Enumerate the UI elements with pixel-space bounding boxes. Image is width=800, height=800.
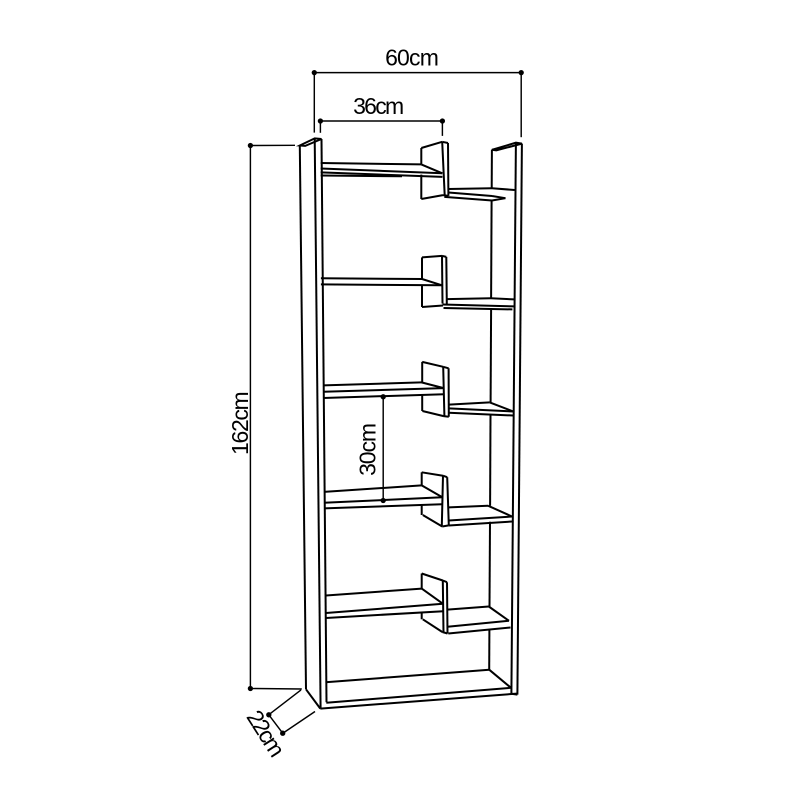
- svg-text:162cm: 162cm: [227, 392, 253, 454]
- svg-text:60cm: 60cm: [385, 45, 438, 71]
- svg-text:30cm: 30cm: [354, 424, 380, 476]
- svg-text:36cm: 36cm: [353, 93, 403, 119]
